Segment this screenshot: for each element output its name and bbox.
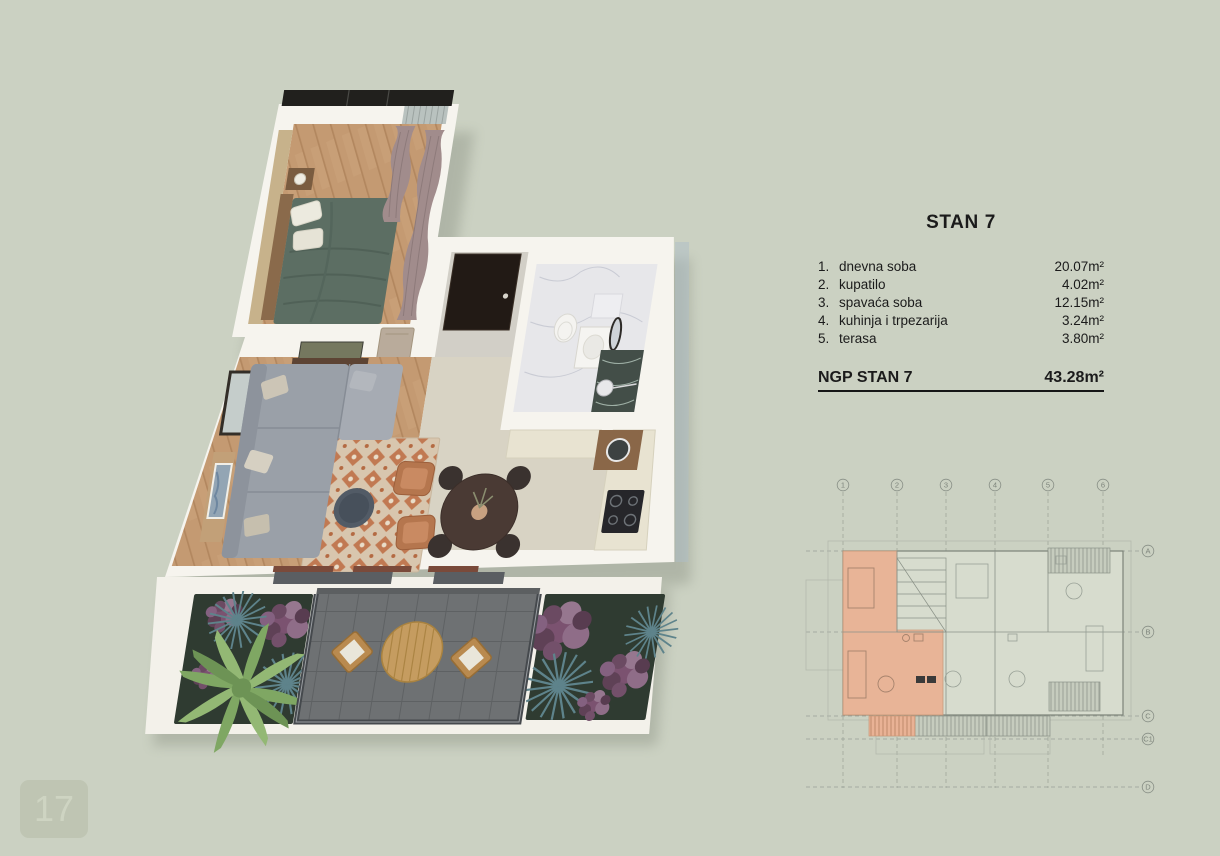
apartment-title: STAN 7	[818, 212, 1104, 234]
site-plan: 1 2 3 4 5 6 A B C C1 D	[786, 456, 1186, 816]
area-row: 3. spavaća soba 12.15m²	[818, 294, 1104, 312]
svg-text:D: D	[1145, 783, 1151, 792]
svg-text:1: 1	[841, 481, 845, 490]
page-number-badge: 17	[20, 780, 88, 838]
grid-column-markers: 1 2 3 4 5 6	[837, 479, 1109, 491]
marble-ledge	[591, 294, 623, 318]
total-row: NGP STAN 7 43.28m²	[818, 369, 1104, 392]
svg-text:A: A	[1145, 547, 1150, 556]
area-row: 2. kupatilo 4.02m²	[818, 276, 1104, 294]
svg-text:6: 6	[1101, 481, 1105, 490]
svg-text:3: 3	[944, 481, 948, 490]
bedroom-window-band	[282, 90, 455, 106]
bathroom	[513, 264, 657, 412]
floor-plan-3d	[52, 72, 752, 802]
tv-art	[298, 342, 363, 360]
armchair	[392, 461, 436, 496]
area-row: 1. dnevna soba 20.07m²	[818, 258, 1104, 276]
area-row: 4. kuhinja i trpezarija 3.24m²	[818, 312, 1104, 330]
svg-text:4: 4	[993, 481, 997, 490]
svg-text:C1: C1	[1143, 735, 1153, 744]
terrace-sliding-doors	[271, 566, 506, 584]
svg-text:B: B	[1145, 628, 1150, 637]
page: STAN 7 1. dnevna soba 20.07m² 2. kupatil…	[0, 0, 1220, 856]
svg-text:5: 5	[1046, 481, 1050, 490]
svg-text:2: 2	[895, 481, 899, 490]
dining-set	[426, 466, 533, 558]
kitchen-counter	[506, 430, 601, 458]
page-number: 17	[34, 788, 74, 830]
svg-text:C: C	[1145, 712, 1151, 721]
area-row: 5. terasa 3.80m²	[818, 330, 1104, 348]
entrance-door	[443, 254, 521, 330]
highlighted-terrace	[869, 716, 915, 736]
grid-row-markers: A B C C1 D	[1142, 545, 1154, 793]
area-table: STAN 7 1. dnevna soba 20.07m² 2. kupatil…	[818, 212, 1104, 392]
cooktop	[601, 490, 645, 533]
